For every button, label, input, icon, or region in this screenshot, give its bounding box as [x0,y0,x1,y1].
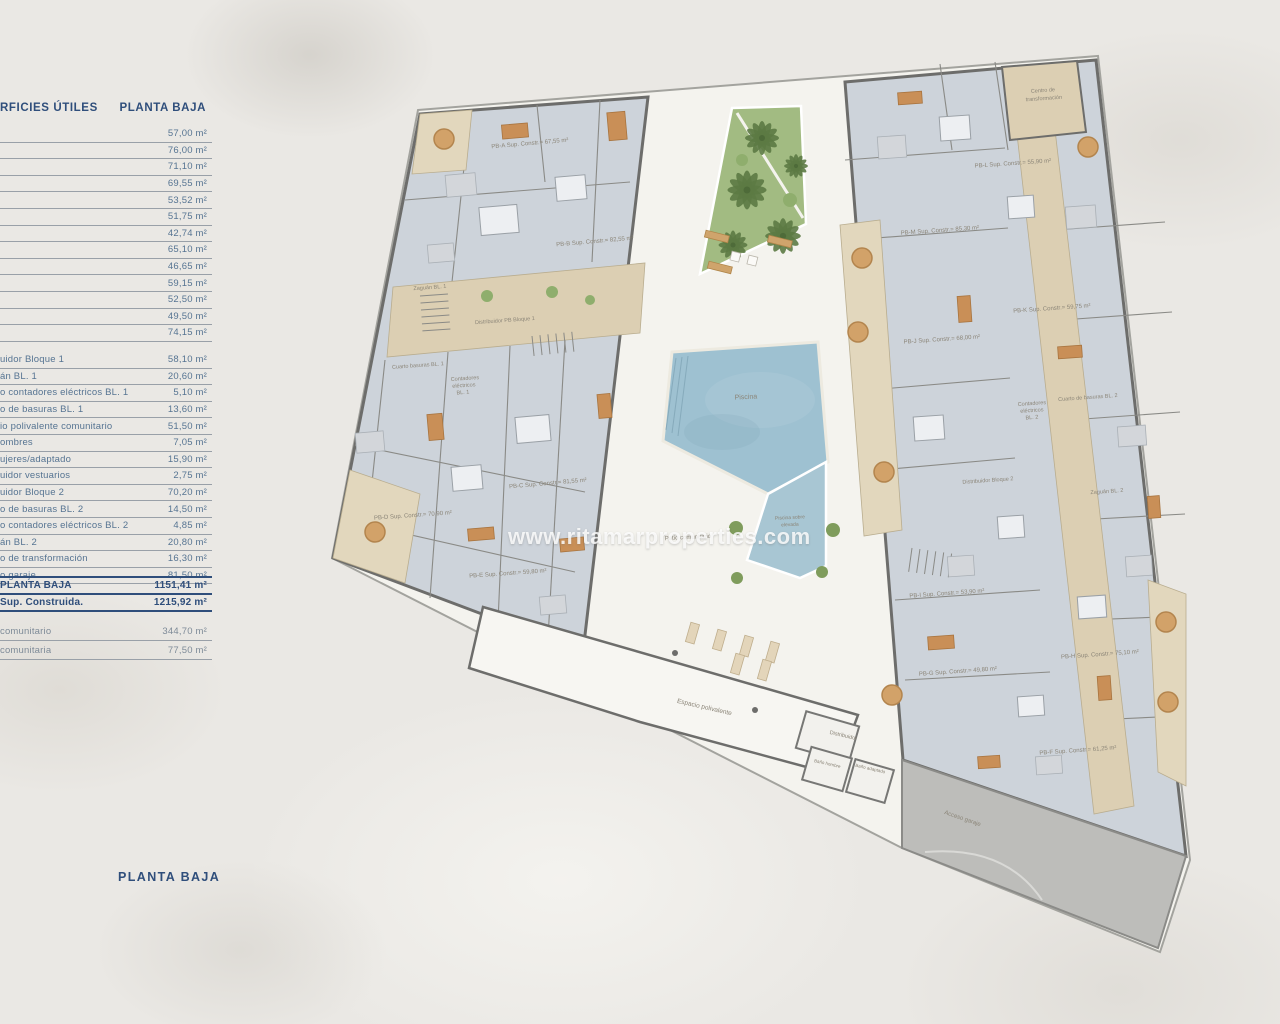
pool-label: Piscina [734,393,757,401]
room-label-contadores-bl1-3: BL. 1 [456,390,469,397]
room-label-contadores-bl2-3: BL. 2 [1025,415,1038,422]
floor-plan: PB-A Sup. Constr.= 67,55 m² PB-B Sup. Co… [0,0,1280,1024]
page: RFICIES ÚTILES PLANTA BAJA 57,00 m² 76,0… [0,0,1280,1024]
raised-pool-label-2: elevada [781,522,799,529]
